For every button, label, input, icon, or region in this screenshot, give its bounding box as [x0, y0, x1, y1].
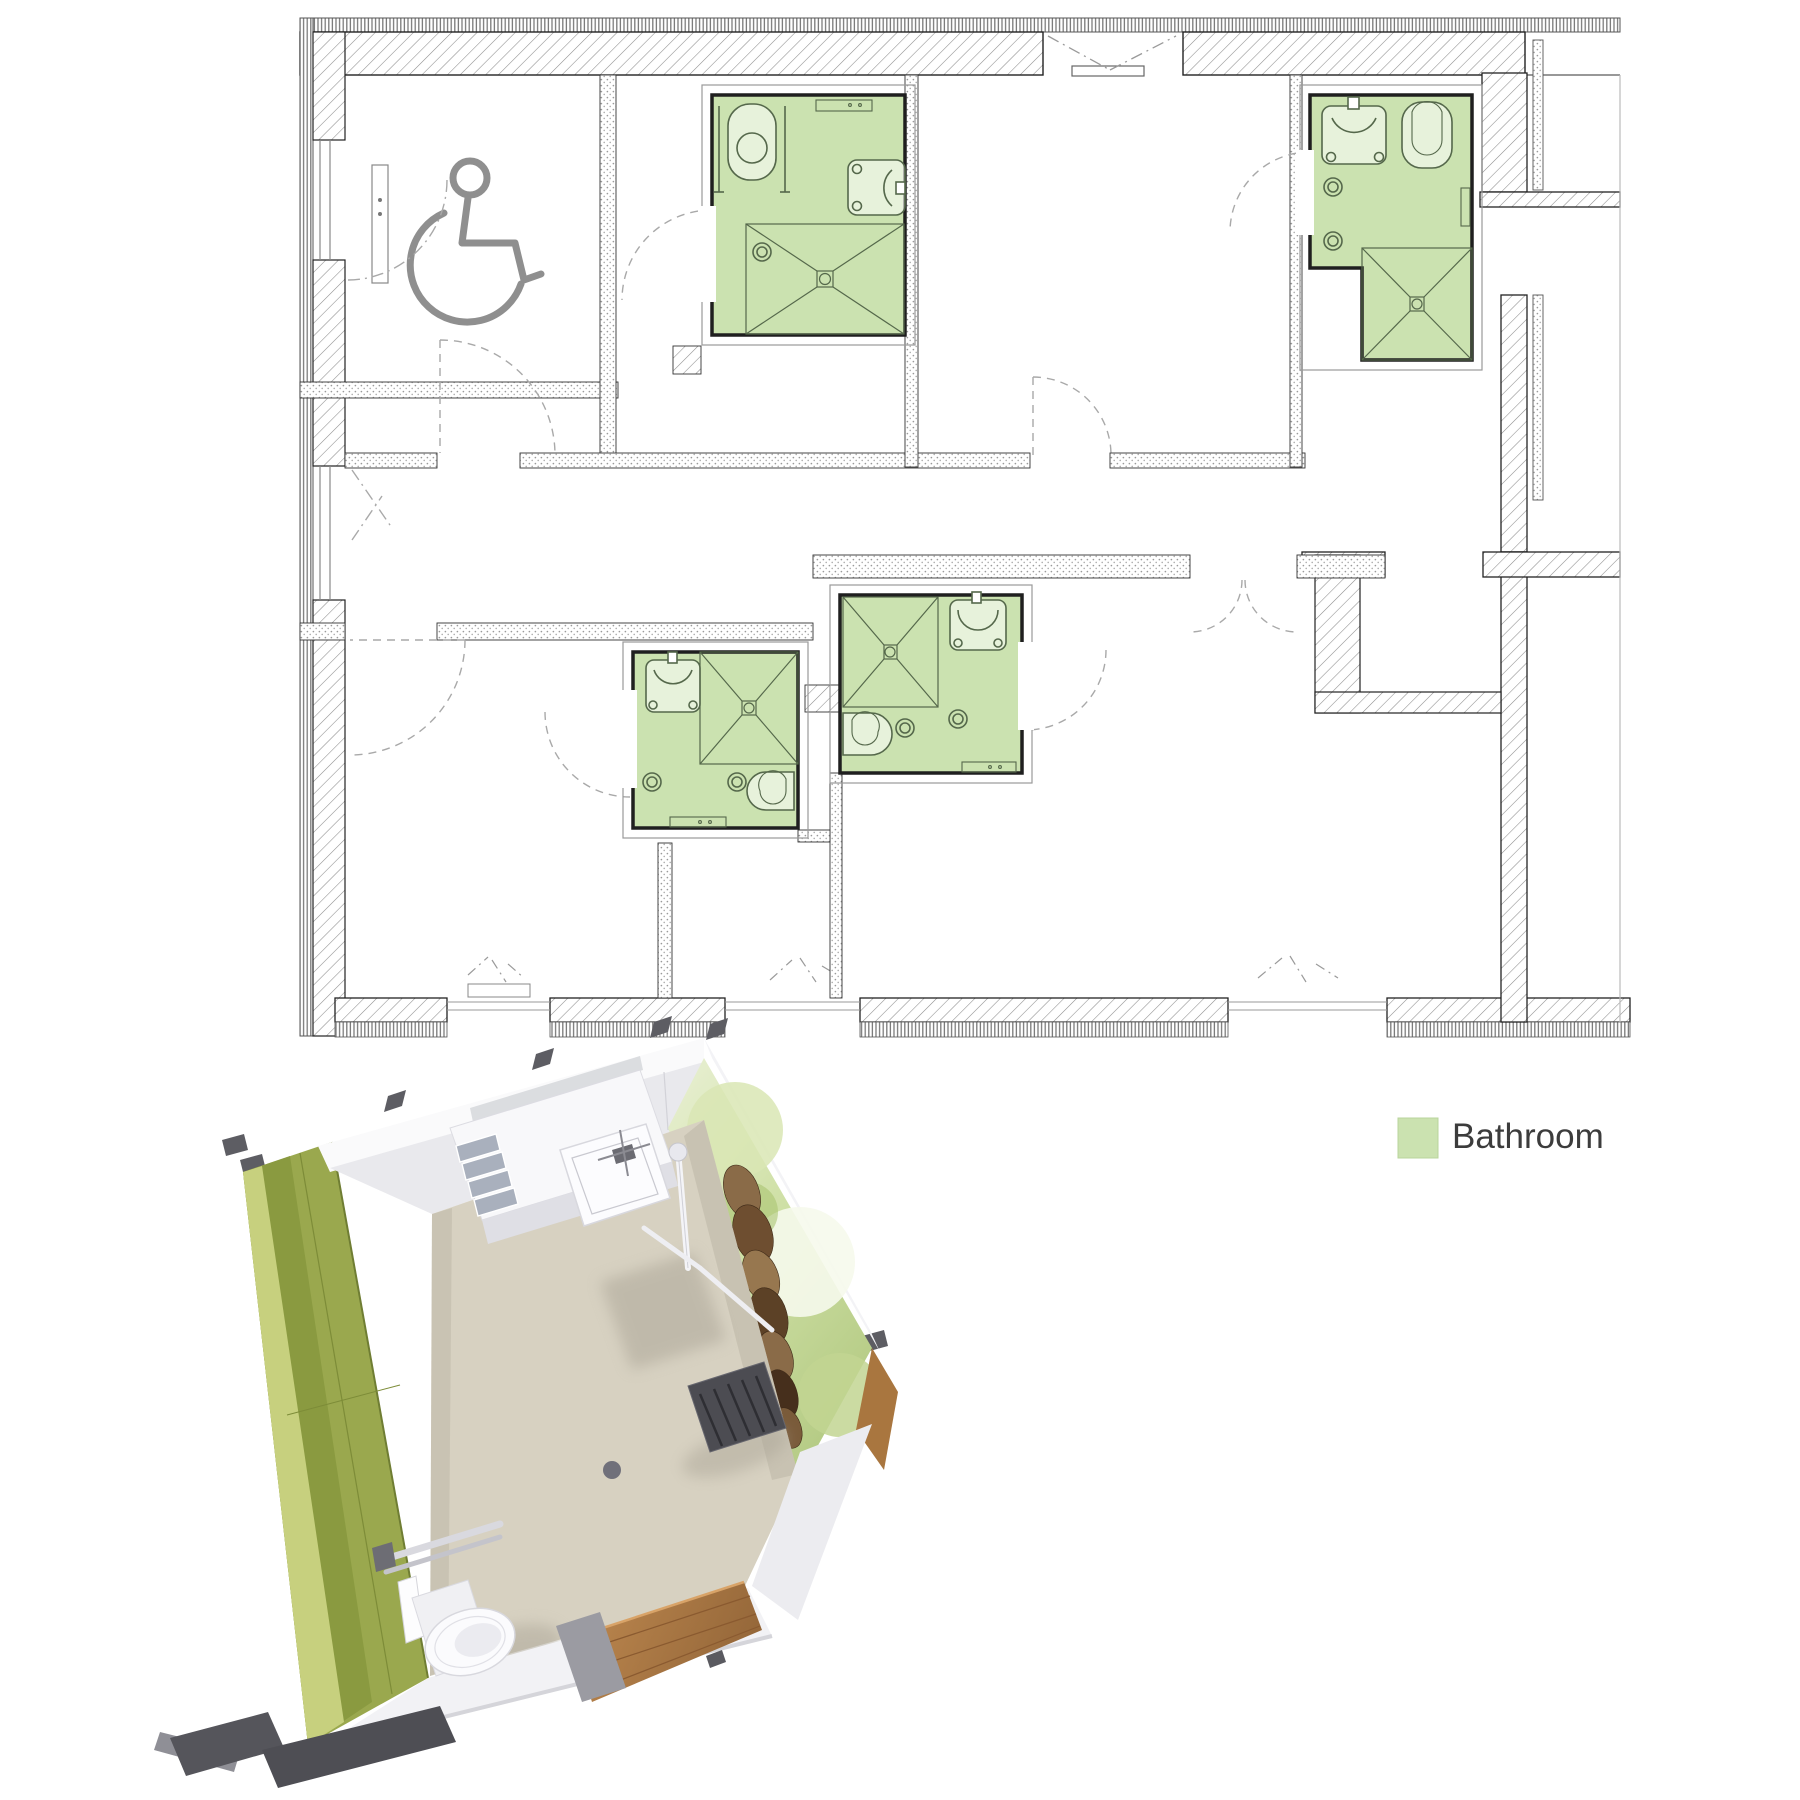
washbasin-icon [646, 652, 700, 712]
legend-swatch [1398, 1118, 1438, 1158]
bathroom-3d-render [154, 1016, 898, 1788]
sliding-door-leaf [1072, 66, 1144, 76]
washbasin-icon [1322, 97, 1386, 164]
wheelchair-accessible-icon [410, 161, 541, 322]
bathroom-3 [619, 642, 808, 838]
wall-insulation [300, 18, 1620, 32]
bathroom-2 [1296, 85, 1482, 370]
toilet-icon [747, 771, 794, 810]
legend: Bathroom [1398, 1117, 1604, 1158]
floor-drain-icon [603, 1461, 621, 1479]
door-opening [1018, 642, 1034, 730]
floor-plan [300, 18, 1630, 1037]
radiator [372, 165, 388, 283]
bathroom-4 [830, 585, 1034, 783]
pod-green-wall [243, 1142, 428, 1745]
shower-head-icon [669, 1143, 687, 1161]
drawing: Bathroom [0, 0, 1800, 1800]
door-opening [698, 206, 716, 302]
door-opening [619, 690, 637, 788]
legend-label: Bathroom [1452, 1117, 1604, 1156]
washbasin-icon [950, 592, 1006, 650]
toilet-icon [1402, 102, 1452, 168]
bathroom-1 [698, 85, 915, 345]
page: Bathroom [0, 0, 1800, 1800]
door-opening [1296, 150, 1314, 235]
toilet-icon [843, 712, 892, 755]
washbasin-icon [848, 160, 905, 215]
